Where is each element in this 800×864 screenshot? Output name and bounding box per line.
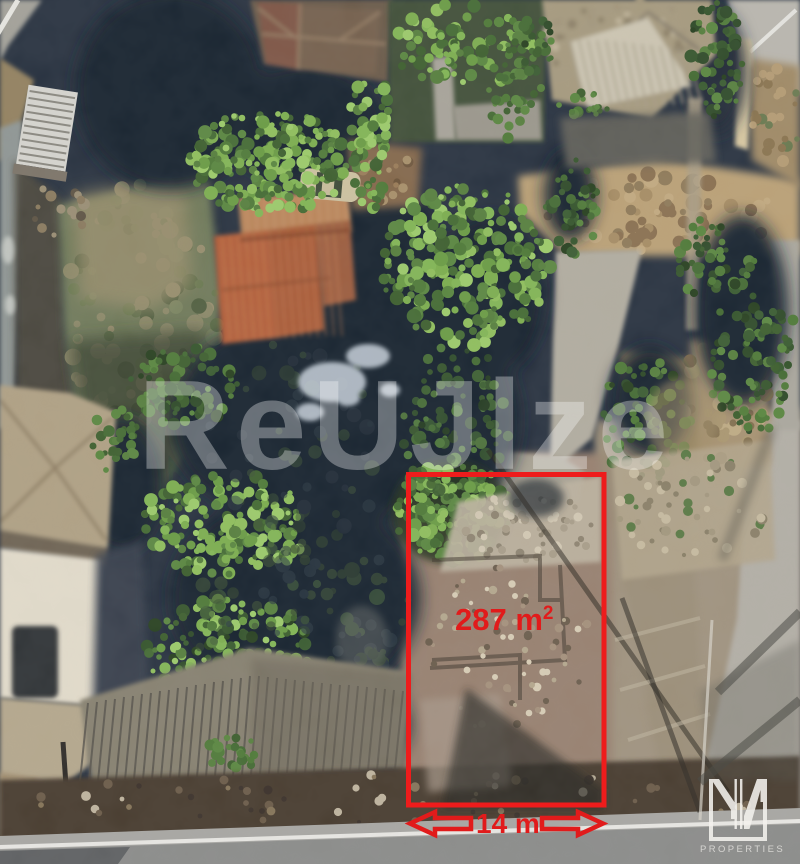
svg-text:PROPERTIES: PROPERTIES: [700, 844, 785, 855]
svg-text:14 m: 14 m: [476, 808, 540, 839]
svg-text:287 m2: 287 m2: [455, 602, 553, 637]
